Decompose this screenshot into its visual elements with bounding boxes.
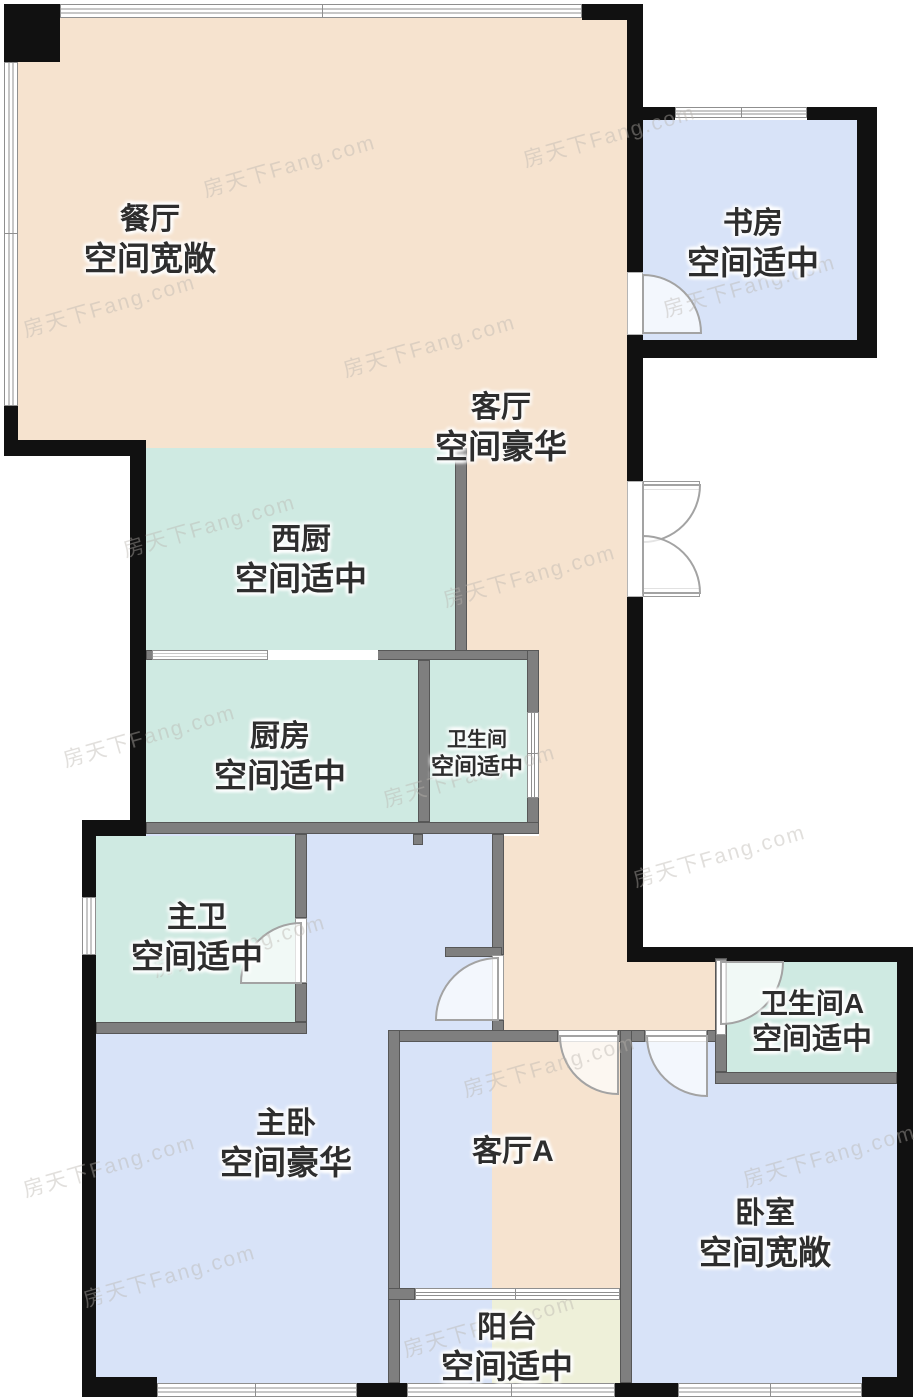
wall-segment bbox=[643, 340, 877, 358]
wall-segment bbox=[627, 947, 897, 962]
room-label-bathroom: 卫生间 空间适中 bbox=[431, 728, 523, 780]
door-leaf-master-bath bbox=[295, 918, 307, 983]
wall-segment bbox=[492, 834, 504, 955]
room-label-west-kitchen: 西厨 空间适中 bbox=[235, 521, 367, 599]
door-leaf-living-a bbox=[558, 1030, 618, 1042]
wall-segment bbox=[627, 4, 643, 272]
window-mullion bbox=[322, 5, 323, 17]
room-name: 西厨 bbox=[235, 521, 367, 559]
room-name: 书房 bbox=[687, 205, 819, 243]
room-label-bedroom: 卧室 空间宽敞 bbox=[699, 1195, 831, 1273]
wall-segment bbox=[413, 834, 423, 845]
wall-segment bbox=[295, 834, 307, 918]
wall-segment bbox=[388, 1030, 400, 1383]
room-name: 客厅 bbox=[435, 389, 567, 427]
room-fill-corridor-east bbox=[627, 962, 715, 1030]
room-label-kitchen: 厨房 空间适中 bbox=[214, 718, 346, 796]
door-leaf-entrance-lower bbox=[643, 588, 700, 597]
room-name: 餐厅 bbox=[84, 201, 216, 239]
wall-segment bbox=[82, 955, 96, 1393]
window-mullion bbox=[770, 1384, 771, 1396]
wall-segment bbox=[388, 1030, 558, 1042]
wall-segment bbox=[418, 660, 430, 822]
wall-segment bbox=[295, 983, 307, 1022]
door-leaf-entrance-upper bbox=[643, 481, 700, 490]
room-label-bathroom-a: 卫生间A 空间适中 bbox=[752, 986, 872, 1058]
room-label-living: 客厅 空间豪华 bbox=[435, 389, 567, 467]
room-desc: 空间适中 bbox=[235, 559, 367, 599]
room-desc: 空间宽敞 bbox=[699, 1233, 831, 1273]
wall-segment bbox=[715, 1072, 897, 1084]
wall-segment bbox=[357, 1383, 407, 1397]
room-desc: 空间适中 bbox=[131, 937, 263, 977]
door-leaf-master-bed bbox=[492, 955, 504, 1020]
door-arc-entrance-upper bbox=[643, 485, 700, 542]
window bbox=[157, 1383, 357, 1397]
wall-segment bbox=[455, 448, 467, 652]
room-name: 卫生间A bbox=[752, 986, 872, 1021]
door-leaf-bathroom-a bbox=[716, 960, 726, 1035]
window-mullion bbox=[255, 1384, 256, 1396]
wall-opening bbox=[268, 650, 378, 660]
door-arc-entrance-lower bbox=[643, 536, 700, 593]
floor-plan: 房天下Fang.com 房天下Fang.com 房天下Fang.com 房天下F… bbox=[0, 0, 915, 1400]
room-desc: 空间适中 bbox=[441, 1347, 573, 1387]
room-desc: 空间适中 bbox=[431, 753, 523, 780]
window-mullion bbox=[528, 753, 538, 754]
room-label-master-bed: 主卧 空间豪华 bbox=[220, 1105, 352, 1183]
room-name: 卧室 bbox=[699, 1195, 831, 1233]
wall-segment bbox=[4, 440, 146, 456]
door-opening-study bbox=[627, 272, 643, 335]
wall-segment bbox=[4, 4, 60, 62]
window-mullion bbox=[741, 108, 742, 117]
room-name: 主卧 bbox=[220, 1105, 352, 1143]
room-label-dining: 餐厅 空间宽敞 bbox=[84, 201, 216, 279]
wall-segment bbox=[615, 1383, 678, 1397]
window-mullion bbox=[5, 233, 17, 234]
wall-segment bbox=[857, 107, 877, 358]
watermark: 房天下Fang.com bbox=[629, 816, 809, 894]
wall-segment bbox=[388, 1288, 415, 1300]
room-fill-living-column2 bbox=[539, 650, 627, 836]
room-desc: 空间豪华 bbox=[220, 1143, 352, 1183]
balcony-sliding-door bbox=[415, 1288, 620, 1300]
room-desc: 空间宽敞 bbox=[84, 239, 216, 279]
room-fill-corridor bbox=[502, 836, 627, 1030]
door-leaf-bedroom bbox=[645, 1030, 707, 1042]
room-name: 主卫 bbox=[131, 899, 263, 937]
wall-segment bbox=[620, 1030, 632, 1383]
room-name: 客厅A bbox=[472, 1133, 554, 1171]
window bbox=[60, 4, 582, 18]
wall-segment bbox=[130, 448, 146, 834]
room-desc: 空间适中 bbox=[687, 243, 819, 283]
wall-segment bbox=[96, 1022, 307, 1034]
room-label-balcony: 阳台 空间适中 bbox=[441, 1309, 573, 1387]
wall-segment bbox=[643, 107, 675, 120]
room-desc: 空间适中 bbox=[214, 756, 346, 796]
room-fill-living-column bbox=[467, 448, 627, 652]
room-name: 阳台 bbox=[441, 1309, 573, 1347]
wall-segment bbox=[146, 822, 539, 834]
wall-segment bbox=[82, 820, 146, 836]
wall-segment bbox=[897, 947, 913, 1393]
wall-segment bbox=[627, 597, 643, 947]
wall-segment bbox=[82, 836, 96, 897]
wall-segment bbox=[82, 1377, 157, 1397]
room-name: 卫生间 bbox=[431, 728, 523, 753]
room-label-master-bath: 主卫 空间适中 bbox=[131, 899, 263, 977]
room-desc: 空间豪华 bbox=[435, 427, 567, 467]
window bbox=[4, 62, 18, 406]
room-label-study: 书房 空间适中 bbox=[687, 205, 819, 283]
bathroom-sliding-door bbox=[527, 712, 539, 798]
room-label-living-a: 客厅A bbox=[472, 1133, 554, 1171]
door-opening-entrance bbox=[627, 481, 643, 597]
window-mullion bbox=[515, 1289, 516, 1299]
window bbox=[82, 897, 96, 955]
wall-segment bbox=[627, 335, 643, 481]
window bbox=[152, 650, 268, 660]
room-name: 厨房 bbox=[214, 718, 346, 756]
room-desc: 空间适中 bbox=[752, 1021, 872, 1058]
